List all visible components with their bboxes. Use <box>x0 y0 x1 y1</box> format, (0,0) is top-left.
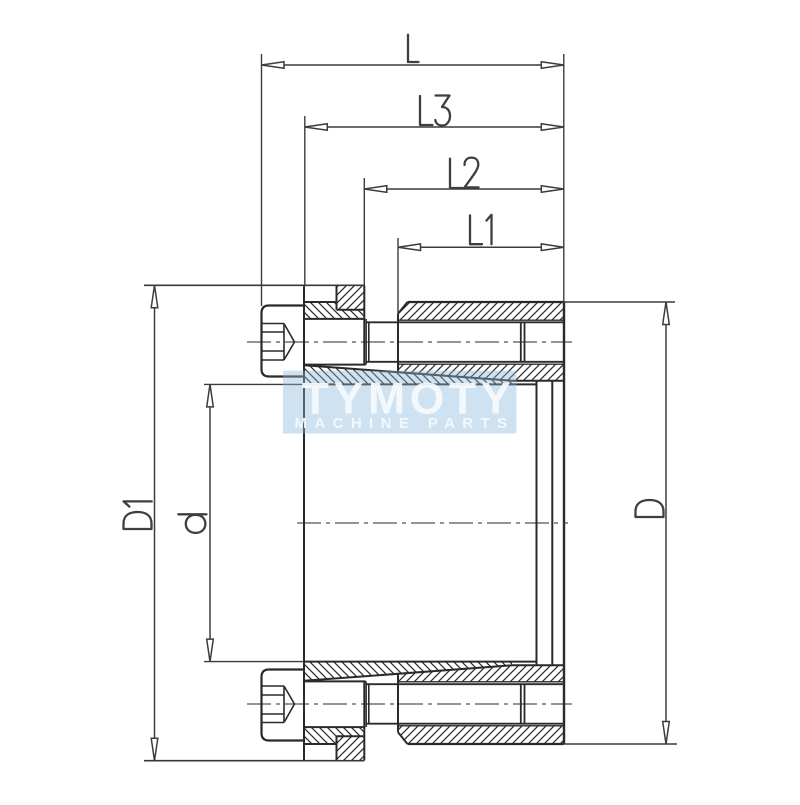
svg-text:MACHINE PARTS: MACHINE PARTS <box>294 415 514 432</box>
